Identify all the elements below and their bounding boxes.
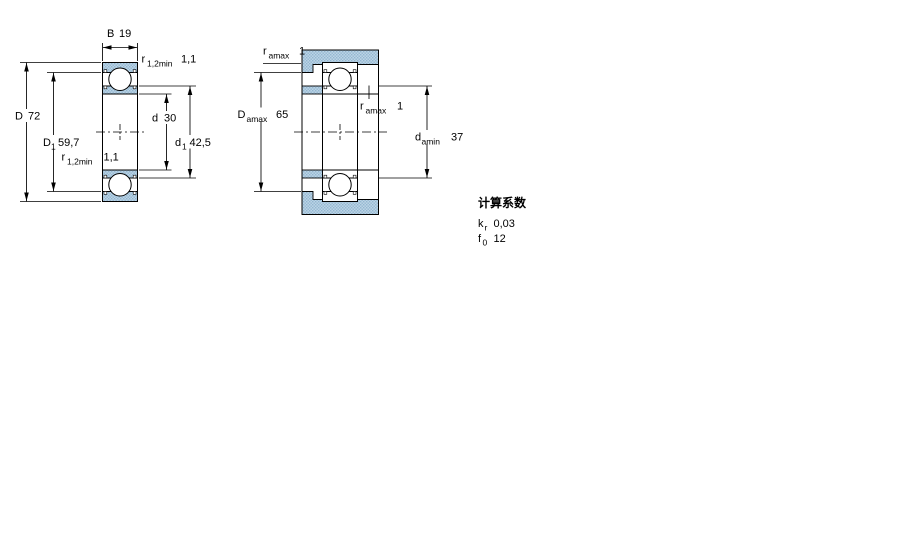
factor-kr-value: 0,03 [494, 218, 515, 230]
dim-b-value: 19 [119, 28, 131, 40]
dim-da-shaft-subscript: amin [422, 137, 441, 147]
shaft-shoulder-bottom [302, 170, 323, 178]
dim-r12-bottom-subscript: 1,2min [67, 157, 93, 167]
factor-kr-subscript: r [485, 223, 488, 233]
dim-da-housing-subscript: amax [247, 114, 269, 124]
ball-top [109, 68, 131, 90]
dim-ra-top-subscript: amax [269, 51, 291, 61]
dim-da-shaft-symbol: d [415, 132, 421, 144]
dim-d1-outer-subscript: 1 [51, 142, 56, 152]
dim-d1-inner-value: 42,5 [190, 137, 211, 149]
drawing-page: B 19 r 1,2min 1,1 D 72 D 1 59,7 r 1,2min… [0, 0, 900, 560]
dim-ra-mid-symbol: r [360, 101, 364, 113]
dim-da-housing-symbol: D [238, 109, 246, 121]
bearing-technical-drawing: B 19 r 1,2min 1,1 D 72 D 1 59,7 r 1,2min… [0, 0, 900, 560]
factor-f0-value: 12 [494, 233, 506, 245]
dim-ra-top-value: 1 [299, 46, 305, 58]
factor-f0-subscript: 0 [483, 238, 488, 248]
dim-d1-outer-symbol: D [43, 137, 51, 149]
dimension-lines [20, 43, 432, 202]
factor-kr-symbol: k [478, 218, 484, 230]
dim-d1-inner-symbol: d [175, 137, 181, 149]
ball-bottom [329, 174, 351, 196]
dim-r12-bottom-value: 1,1 [104, 152, 119, 164]
dim-ra-mid-value: 1 [397, 101, 403, 113]
dim-b-symbol: B [107, 28, 114, 40]
calculation-factors: 计算系数 k r 0,03 f 0 12 [478, 195, 527, 248]
dim-bore-symbol: d [152, 113, 158, 125]
dim-da-shaft-value: 37 [451, 132, 463, 144]
dim-r12-bottom-symbol: r [62, 152, 66, 164]
left-view-labels: B 19 r 1,2min 1,1 D 72 D 1 59,7 r 1,2min… [15, 28, 211, 167]
dim-da-housing-value: 65 [276, 109, 288, 121]
dim-ra-mid-subscript: amax [366, 106, 388, 116]
shaft-shoulder-top [302, 86, 323, 94]
dim-r12-top-value: 1,1 [181, 54, 196, 66]
calculation-factors-title: 计算系数 [478, 195, 527, 210]
dim-bore-value: 30 [164, 113, 176, 125]
dim-r12-top-symbol: r [142, 54, 146, 66]
dim-d-outer-symbol: D [15, 111, 23, 123]
centerlines [96, 124, 387, 140]
dimension-arrowheads [24, 45, 429, 201]
dim-d-outer-value: 72 [28, 111, 40, 123]
dim-r12-top-subscript: 1,2min [147, 59, 173, 69]
dim-ra-top-symbol: r [263, 46, 267, 58]
factor-f0-symbol: f [478, 233, 482, 245]
ball-bottom [109, 174, 131, 196]
dim-d1-inner-subscript: 1 [182, 142, 187, 152]
ball-top [329, 68, 351, 90]
dim-d1-outer-value: 59,7 [58, 137, 79, 149]
